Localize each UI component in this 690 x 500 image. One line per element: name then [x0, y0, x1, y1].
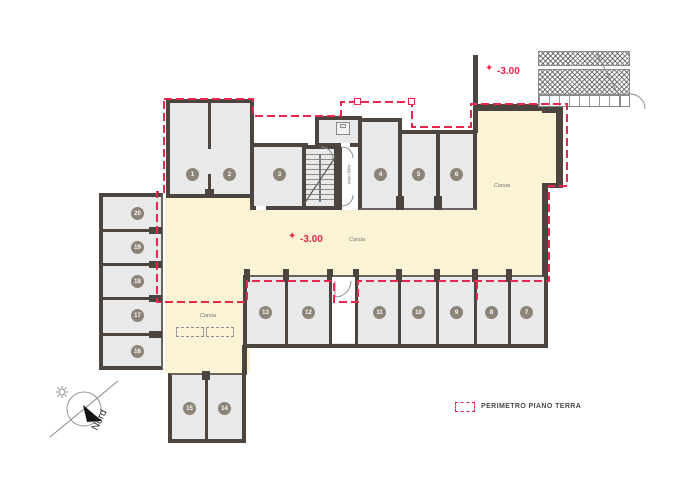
corsia-label-left: Corsia	[200, 313, 216, 319]
ramp-grating	[538, 95, 620, 107]
elevator-fixture-inner	[340, 124, 346, 128]
wall-spine-right	[473, 55, 478, 133]
stall-badge-20: 20	[131, 207, 144, 220]
door-jamb	[396, 196, 404, 210]
north-arrow-icon	[83, 405, 102, 422]
stall-number: 16	[134, 349, 141, 355]
stall-badge-6: 6	[450, 168, 463, 181]
stall-badge-19: 19	[131, 241, 144, 254]
stall-badge-18: 18	[131, 275, 144, 288]
door-jamb	[434, 196, 442, 210]
wall-segment	[103, 333, 149, 336]
stall-number: 3	[278, 172, 281, 178]
door-jamb	[506, 269, 512, 282]
vestibule-door-gap	[341, 143, 350, 147]
stall-badge-4: 4	[374, 168, 387, 181]
ground-floor-marker-square	[354, 98, 361, 105]
stall-badge-11: 11	[373, 306, 386, 319]
wall-segment	[474, 277, 477, 344]
wall-segment	[205, 189, 214, 194]
stall-number: 9	[455, 310, 458, 316]
wall-segment	[355, 277, 358, 344]
wall-segment	[103, 263, 149, 266]
door-jamb	[244, 269, 250, 282]
legend-perimeter-label: PERIMETRO PIANO TERRA	[481, 403, 581, 410]
sun-icon	[56, 386, 68, 398]
stall-number: 8	[490, 310, 493, 316]
wall-segment	[103, 297, 149, 300]
stall-block-7-13	[243, 275, 548, 348]
door-jamb	[149, 227, 162, 234]
stall-number: 6	[455, 172, 458, 178]
level-label-main: -3.00	[300, 234, 323, 245]
corsia-label-main: Corsia	[349, 237, 365, 243]
stall-badge-13: 13	[259, 306, 272, 319]
level-marker-star-icon: ✦	[288, 232, 296, 242]
stall-number: 2	[228, 172, 231, 178]
level-label-top-right: -3.00	[497, 66, 520, 77]
stall-number: 19	[134, 245, 141, 251]
ramp-hatch-upper	[538, 51, 630, 66]
stall-number: 11	[376, 310, 382, 316]
stall-badge-3: 3	[273, 168, 286, 181]
corridor-left-lane	[165, 197, 250, 373]
wall-segment	[508, 277, 511, 344]
wall-segment	[242, 345, 247, 375]
door-jamb	[149, 261, 162, 268]
stall-number: 17	[134, 313, 141, 319]
stall-badge-1: 1	[186, 168, 199, 181]
wall-segment	[205, 377, 208, 439]
stall-badge-12: 12	[302, 306, 315, 319]
stall-badge-7: 7	[520, 306, 533, 319]
door-jamb	[396, 269, 402, 282]
corridor-main	[250, 208, 543, 277]
room-3-door-gap	[256, 206, 266, 210]
wall-segment	[556, 106, 563, 186]
stair-treads-right	[321, 154, 334, 202]
stall-badge-14: 14	[218, 402, 231, 415]
wall-segment	[208, 103, 211, 149]
wall-segment	[436, 277, 439, 344]
stall-badge-16: 16	[131, 345, 144, 358]
wall-segment	[477, 104, 543, 111]
wall-segment	[398, 277, 401, 344]
legend-perimeter-symbol	[455, 402, 475, 412]
wall-segment	[542, 188, 548, 277]
door-jamb	[283, 269, 289, 282]
stall-badge-8: 8	[485, 306, 498, 319]
ramp-hatch-lower	[538, 69, 630, 95]
stall-number: 7	[525, 310, 528, 316]
stall-badge-9: 9	[450, 306, 463, 319]
stall-badge-17: 17	[131, 309, 144, 322]
north-label: Nord	[90, 408, 110, 432]
passage-between-stalls	[332, 277, 355, 343]
stair-treads-left	[306, 154, 319, 202]
wall-segment	[103, 229, 149, 232]
stall-badge-10: 10	[412, 306, 425, 319]
stall-number: 13	[262, 310, 269, 316]
vano-filtro-label: Vano filtro	[347, 155, 352, 195]
stall-number: 5	[417, 172, 420, 178]
north-compass: Nord	[50, 381, 118, 437]
door-jamb	[434, 269, 440, 282]
ground-floor-marker-square	[408, 98, 415, 105]
corridor-right-lane	[477, 110, 543, 208]
stall-badge-15: 15	[183, 402, 196, 415]
door-jamb	[202, 371, 210, 380]
stall-badge-5: 5	[412, 168, 425, 181]
ramp-end-box	[620, 95, 630, 107]
wall-segment	[285, 277, 288, 344]
corsia-label-right: Corsia	[494, 183, 510, 189]
stall-number: 18	[134, 279, 141, 285]
stair-spine-wall	[319, 154, 321, 202]
level-marker-star-icon: ✦	[485, 64, 493, 74]
floor-plan: 1 2 3 4 5 6 7 8 9 10 11 12 13 14 15 16 1…	[0, 0, 690, 500]
door-jamb	[149, 331, 162, 338]
stall-number: 12	[305, 310, 312, 316]
stall-number: 15	[186, 406, 193, 412]
stall-number: 1	[191, 172, 194, 178]
stall-number: 4	[379, 172, 382, 178]
door-jamb	[472, 269, 478, 282]
stall-number: 10	[415, 310, 422, 316]
dashed-parking-outline	[206, 327, 234, 337]
door-jamb	[149, 295, 162, 302]
stall-number: 14	[221, 406, 228, 412]
dashed-parking-outline	[176, 327, 204, 337]
stall-badge-2: 2	[223, 168, 236, 181]
stall-number: 20	[134, 211, 141, 217]
